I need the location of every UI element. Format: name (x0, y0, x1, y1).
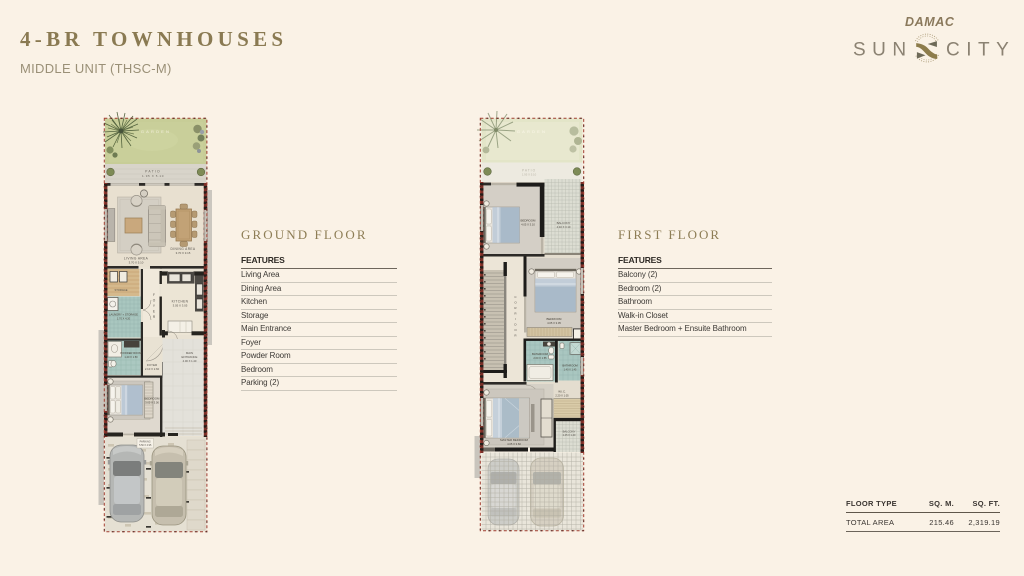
svg-text:BATHROOM: BATHROOM (562, 364, 578, 368)
svg-text:F: F (153, 293, 155, 297)
svg-text:2.45 X 1.40: 2.45 X 1.40 (563, 434, 576, 437)
svg-text:1.95 X 5.10: 1.95 X 5.10 (522, 173, 537, 177)
svg-text:2.10 X 2.60: 2.10 X 2.60 (145, 367, 160, 371)
svg-text:STORAGE: STORAGE (114, 288, 127, 292)
svg-text:W.I.C.: W.I.C. (558, 390, 566, 394)
svg-text:BEDROOM: BEDROOM (521, 219, 537, 223)
svg-text:4.05 X 3.60: 4.05 X 3.60 (507, 442, 521, 446)
svg-text:1.95 X 5.10: 1.95 X 5.10 (142, 174, 164, 178)
svg-text:DAMAC: DAMAC (905, 15, 955, 29)
svg-text:3.70 X 3.15: 3.70 X 3.15 (176, 251, 191, 255)
svg-text:BATHROOM: BATHROOM (532, 352, 549, 356)
svg-text:CITY: CITY (946, 40, 1015, 61)
svg-text:2.60 X 1.55: 2.60 X 1.55 (533, 356, 547, 360)
svg-text:GARDEN: GARDEN (517, 129, 547, 134)
svg-text:4.05 X 3.10: 4.05 X 3.10 (521, 223, 535, 227)
svg-text:LAUNDRY + STORAGE: LAUNDRY + STORAGE (109, 313, 138, 317)
svg-text:SUN: SUN (853, 40, 913, 61)
svg-text:5.50 X 4.95: 5.50 X 4.95 (139, 444, 152, 447)
svg-text:4.40 X 3.10: 4.40 X 3.10 (557, 225, 571, 229)
svg-text:1.40 X 1.50: 1.40 X 1.50 (124, 355, 138, 359)
svg-text:BEDROOM: BEDROOM (547, 317, 563, 321)
svg-text:BALCONY: BALCONY (557, 221, 571, 225)
svg-text:GARDEN: GARDEN (141, 129, 171, 134)
svg-text:4.05 X 3.05: 4.05 X 3.05 (547, 321, 561, 325)
svg-text:3.70 X 5.10: 3.70 X 5.10 (129, 261, 144, 265)
svg-text:POWDER ROOM: POWDER ROOM (120, 351, 142, 355)
svg-text:1.40 X 1.45: 1.40 X 1.45 (564, 369, 577, 372)
svg-text:PATIO: PATIO (145, 170, 161, 174)
svg-text:4.00 X 1.40: 4.00 X 1.40 (183, 359, 197, 363)
svg-text:MASTER BEDROOM: MASTER BEDROOM (500, 438, 528, 442)
svg-text:3.05 X 3.05: 3.05 X 3.05 (173, 304, 188, 308)
svg-text:2.20 X 1.05: 2.20 X 1.05 (555, 394, 569, 398)
svg-text:3.05 X 3.00: 3.05 X 3.00 (145, 401, 159, 405)
svg-text:ENTRANCE: ENTRANCE (182, 355, 198, 359)
svg-text:BALCONY: BALCONY (563, 430, 576, 434)
svg-text:E: E (153, 310, 155, 314)
svg-text:BEDROOM: BEDROOM (145, 397, 161, 401)
svg-text:1.70 X 4.20: 1.70 X 4.20 (117, 317, 131, 321)
